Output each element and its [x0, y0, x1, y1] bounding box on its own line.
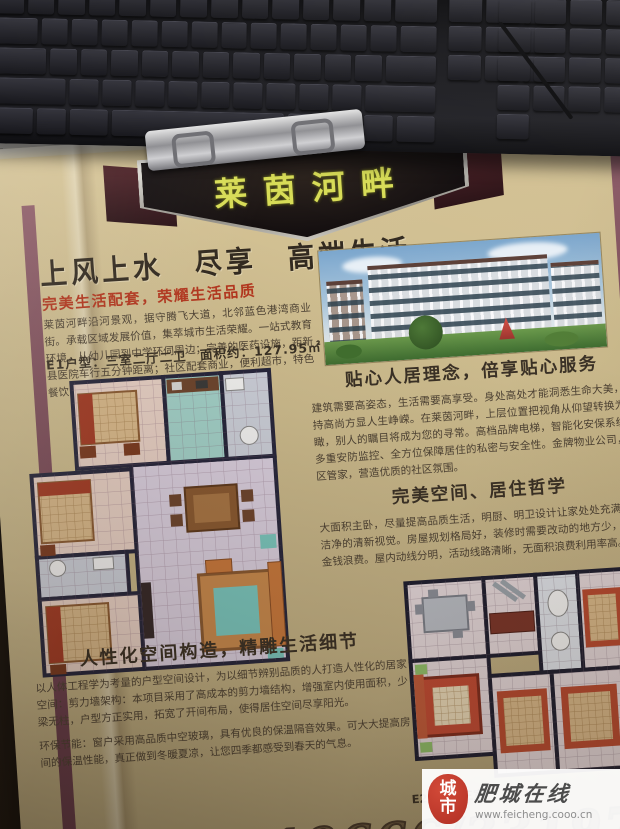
keyboard-key — [267, 83, 297, 110]
keyboard-key — [234, 82, 264, 109]
keyboard-key — [0, 77, 65, 104]
building-block-left — [326, 280, 367, 346]
keyboard-key — [569, 57, 601, 83]
keyboard-main-keys — [0, 0, 437, 142]
seal-char-2: 市 — [440, 799, 457, 817]
keyboard-key — [168, 81, 198, 108]
keyboard-key — [605, 29, 620, 55]
keyboard-key — [281, 23, 307, 50]
keyboard-key — [81, 49, 108, 76]
keyboard-key — [499, 0, 531, 23]
keyboard-key — [310, 24, 336, 51]
keyboard-key — [364, 0, 391, 22]
keyboard-key — [332, 84, 362, 111]
section-service-body: 建筑需要高姿态，生活需要高享受。身处高处才能洞悉生命大美，保持高尚方显人生峥嵘。… — [311, 380, 620, 486]
keyboard-key — [496, 114, 528, 140]
keyboard-key — [370, 25, 396, 52]
keyboard-key — [605, 0, 620, 26]
keyboard-key — [385, 55, 436, 82]
keyboard-key — [363, 115, 393, 142]
site-name: 肥城在线 — [473, 778, 594, 808]
watermark-text: 肥城在线 www.feicheng.cooo.cn — [475, 778, 592, 821]
keyboard-key — [365, 85, 435, 112]
keyboard-key — [0, 107, 33, 134]
keyboard-key — [449, 0, 483, 22]
keyboard-key — [394, 0, 437, 23]
keyboard-key — [569, 28, 601, 54]
keyboard-key — [201, 82, 231, 109]
keyboard-key — [119, 0, 146, 16]
keyboard-key — [28, 0, 55, 14]
keyboard-key — [604, 87, 620, 113]
keyboard-key — [534, 0, 566, 24]
keyboard-key — [221, 22, 247, 49]
keyboard-key — [0, 47, 47, 74]
keyboard-key — [604, 58, 620, 84]
keyboard-key — [294, 54, 321, 81]
keyboard-numpad-keys — [496, 0, 620, 142]
keyboard-key — [180, 0, 207, 18]
section-service: 贴心人居理念，倍享贴心服务 建筑需要高姿态，生活需要高享受。身处高处才能洞悉生命… — [309, 348, 620, 486]
floorplan-e2 — [397, 560, 620, 795]
keyboard-key — [299, 84, 329, 111]
keyboard-key — [36, 108, 66, 135]
building-rendering-image — [317, 232, 608, 367]
keyboard-key — [58, 0, 85, 15]
keyboard-key — [448, 26, 482, 52]
keyboard-key — [448, 55, 482, 81]
keyboard-key — [202, 52, 229, 79]
keyboard-key — [355, 55, 382, 82]
keyboard-key — [161, 21, 187, 48]
keyboard-key — [303, 0, 330, 20]
building-block-right — [551, 260, 603, 333]
keyboard-key — [172, 51, 199, 78]
keyboard-key — [131, 20, 157, 47]
city-seal-logo: 城 市 — [428, 774, 468, 824]
keyboard-key — [233, 52, 260, 79]
site-watermark: 城 市 肥城在线 www.feicheng.cooo.cn — [422, 769, 620, 829]
keyboard-key — [150, 0, 177, 17]
keyboard-key — [534, 28, 566, 54]
keyboard-key — [0, 0, 24, 14]
site-url: www.feicheng.cooo.cn — [475, 809, 592, 821]
keyboard-key — [340, 24, 366, 51]
keyboard-key — [89, 0, 116, 16]
keyboard-key — [211, 0, 238, 18]
keyboard-key — [135, 80, 165, 107]
keyboard-key — [397, 116, 435, 143]
keyboard-key — [72, 19, 98, 46]
keyboard-key — [70, 109, 108, 136]
keyboard-key — [497, 85, 529, 111]
keyboard-key — [251, 23, 277, 50]
keyboard-key — [141, 50, 168, 77]
keyboard-key — [242, 0, 269, 19]
keyboard-key — [0, 17, 38, 44]
keyboard-key — [333, 0, 360, 21]
keyboard-key — [50, 48, 77, 75]
keyboard-key — [101, 19, 127, 46]
keyboard-key — [42, 18, 68, 45]
keyboard-key — [570, 0, 602, 25]
keyboard-key — [111, 50, 138, 77]
keyboard-key — [568, 86, 600, 112]
keyboard-key — [400, 26, 437, 53]
section-space: 完美空间、居住哲学 大面积主卧，尽量提高品质生活，明厨、明卫设计让家处处充满窗明… — [317, 468, 620, 572]
photo-scene: 莱茵河畔 上风上水 尽享 高端生活 完美生活配套，荣耀生活品质 莱茵河畔沿河景观… — [0, 0, 620, 829]
real-estate-flyer: 莱茵河畔 上风上水 尽享 高端生活 完美生活配套，荣耀生活品质 莱茵河畔沿河景观… — [0, 105, 620, 829]
keyboard-key — [324, 54, 351, 81]
keyboard-key — [263, 53, 290, 80]
keyboard-key — [69, 79, 99, 106]
keyboard-key — [272, 0, 299, 20]
keyboard-key — [102, 80, 132, 107]
keyboard-key — [191, 21, 217, 48]
section-detail: 人性化空间构造，精雕生活细节 以人体工程学为考量的户型空间设计，为以细节辨别品质… — [33, 624, 412, 773]
